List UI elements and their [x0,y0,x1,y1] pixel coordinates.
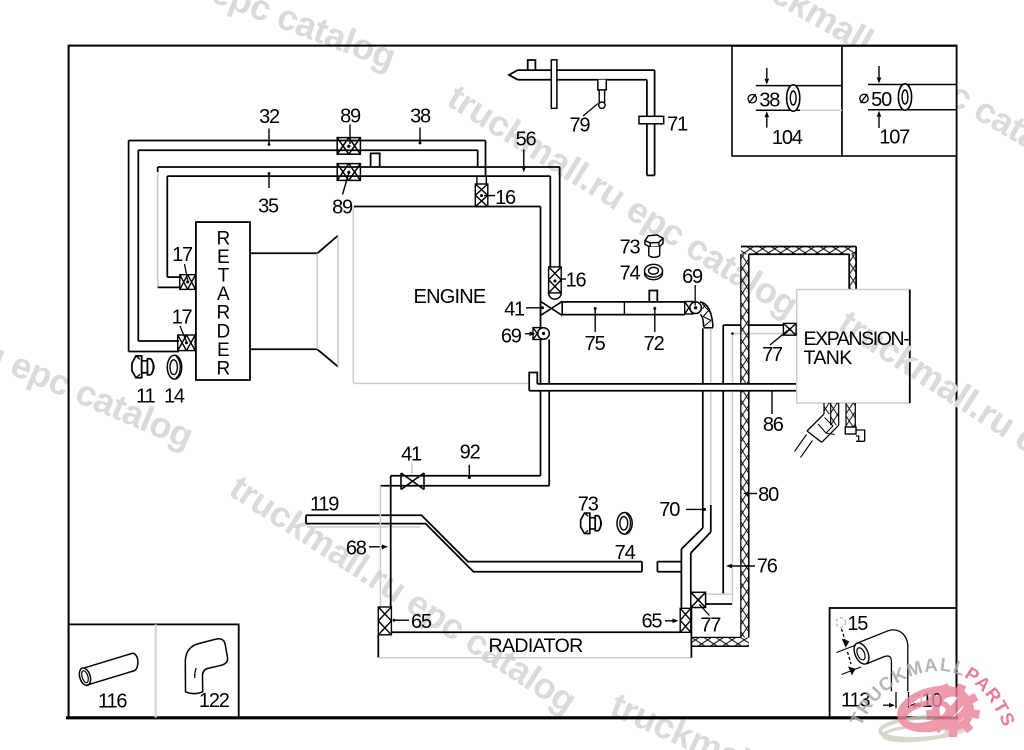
svg-text:35: 35 [258,196,279,218]
svg-text:69: 69 [682,266,703,288]
svg-text:89: 89 [332,196,353,218]
svg-text:17: 17 [172,244,193,266]
svg-text:68: 68 [346,538,367,560]
svg-text:80: 80 [758,484,779,506]
svg-text:41: 41 [504,298,525,320]
svg-text:50: 50 [871,89,892,111]
svg-text:16: 16 [495,187,516,209]
svg-text:72: 72 [644,333,665,355]
svg-text:32: 32 [259,106,280,128]
svg-text:38: 38 [759,90,780,112]
svg-text:107: 107 [879,127,910,149]
svg-text:86: 86 [763,414,784,436]
svg-text:RADIATOR: RADIATOR [489,635,584,657]
svg-text:104: 104 [772,127,803,149]
svg-text:119: 119 [310,493,339,515]
svg-text:ENGINE: ENGINE [414,286,486,308]
svg-text:71: 71 [667,113,688,135]
svg-text:79: 79 [569,114,590,136]
svg-text:89: 89 [340,105,361,127]
svg-text:77: 77 [700,614,721,636]
svg-text:15: 15 [847,613,868,635]
svg-text:69: 69 [501,326,522,348]
svg-text:75: 75 [585,333,606,355]
svg-text:116: 116 [98,691,127,713]
svg-text:77: 77 [762,344,783,366]
svg-text:41: 41 [401,443,422,465]
svg-text:14: 14 [164,386,185,408]
svg-text:17: 17 [172,306,193,328]
svg-text:11: 11 [136,386,155,408]
svg-text:73: 73 [620,237,641,259]
svg-text:92: 92 [460,442,481,464]
svg-text:74: 74 [620,262,641,284]
svg-text:R: R [217,358,231,379]
svg-text:70: 70 [659,499,680,521]
svg-text:73: 73 [578,493,599,515]
svg-text:TANK: TANK [804,347,853,369]
svg-text:65: 65 [641,611,662,633]
svg-text:16: 16 [566,270,587,292]
svg-text:56: 56 [516,129,537,151]
svg-text:65: 65 [411,611,432,633]
svg-text:122: 122 [199,690,230,712]
svg-text:74: 74 [615,542,636,564]
svg-text:76: 76 [757,555,778,577]
svg-text:38: 38 [410,105,431,127]
